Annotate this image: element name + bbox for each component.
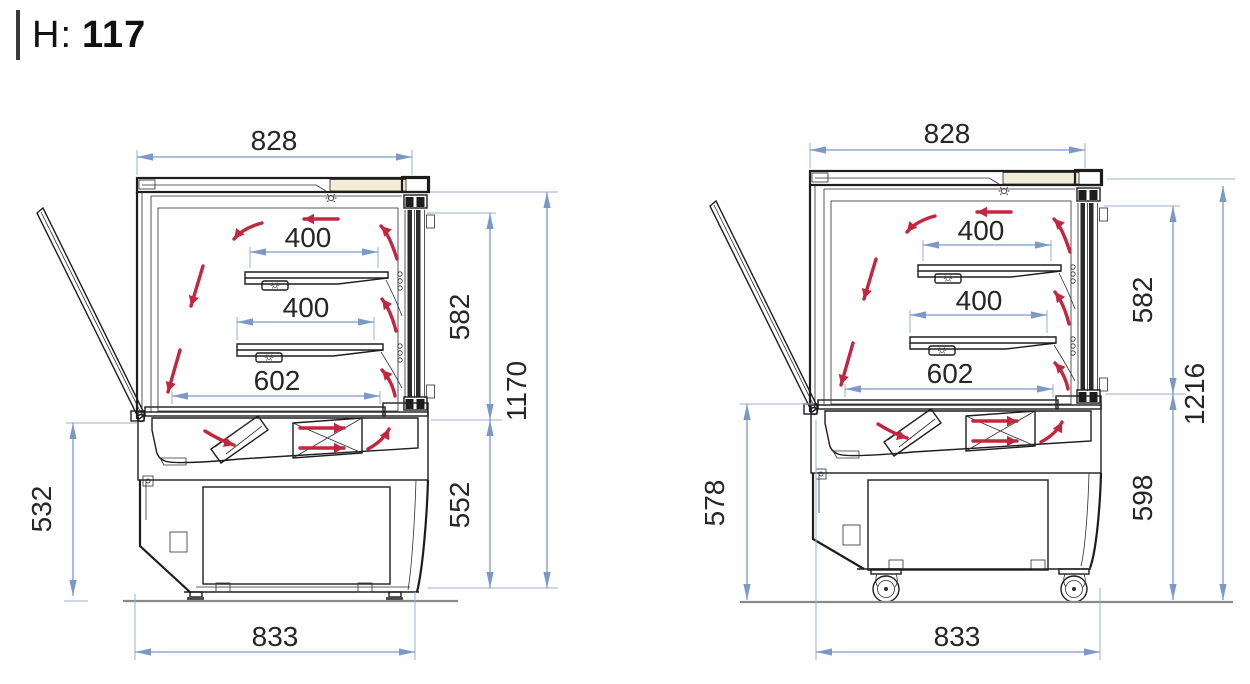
dim-display-height: 582 [444, 294, 475, 341]
right-view: 828 400 400 602 582 598 1216 578 833 [699, 118, 1235, 660]
dim-shelf-upper: 400 [285, 222, 332, 253]
dim-overall-height: 1170 [501, 361, 532, 421]
caster-wheel [1059, 569, 1089, 602]
dim-door-open-height: 578 [699, 480, 730, 527]
dim-top-width: 828 [251, 125, 298, 156]
adjustable-foot [187, 592, 204, 601]
dim-shelf-lower: 400 [283, 292, 330, 323]
dim-top-width: 828 [924, 118, 971, 149]
dim-interior-width: 602 [927, 358, 974, 389]
dim-base-height: 598 [1127, 475, 1158, 522]
dim-overall-width: 833 [934, 621, 981, 652]
technical-drawing-page: H: 117 [0, 0, 1250, 684]
dim-interior-width: 602 [254, 365, 301, 396]
dim-shelf-lower: 400 [956, 285, 1003, 316]
left-view-base [140, 480, 428, 601]
right-view-base [813, 473, 1101, 602]
dim-display-height: 582 [1127, 277, 1158, 324]
dim-overall-height: 1216 [1179, 363, 1210, 425]
caster-wheel [871, 569, 901, 602]
dim-shelf-upper: 400 [958, 215, 1005, 246]
left-view: 828 400 400 602 582 552 1170 532 833 [26, 125, 558, 660]
dim-overall-width: 833 [252, 621, 299, 652]
dim-door-open-height: 532 [26, 486, 57, 533]
dim-base-height: 552 [444, 482, 475, 529]
cross-section-drawing: 828 400 400 602 582 552 1170 532 833 [0, 0, 1250, 684]
adjustable-foot [386, 592, 403, 601]
